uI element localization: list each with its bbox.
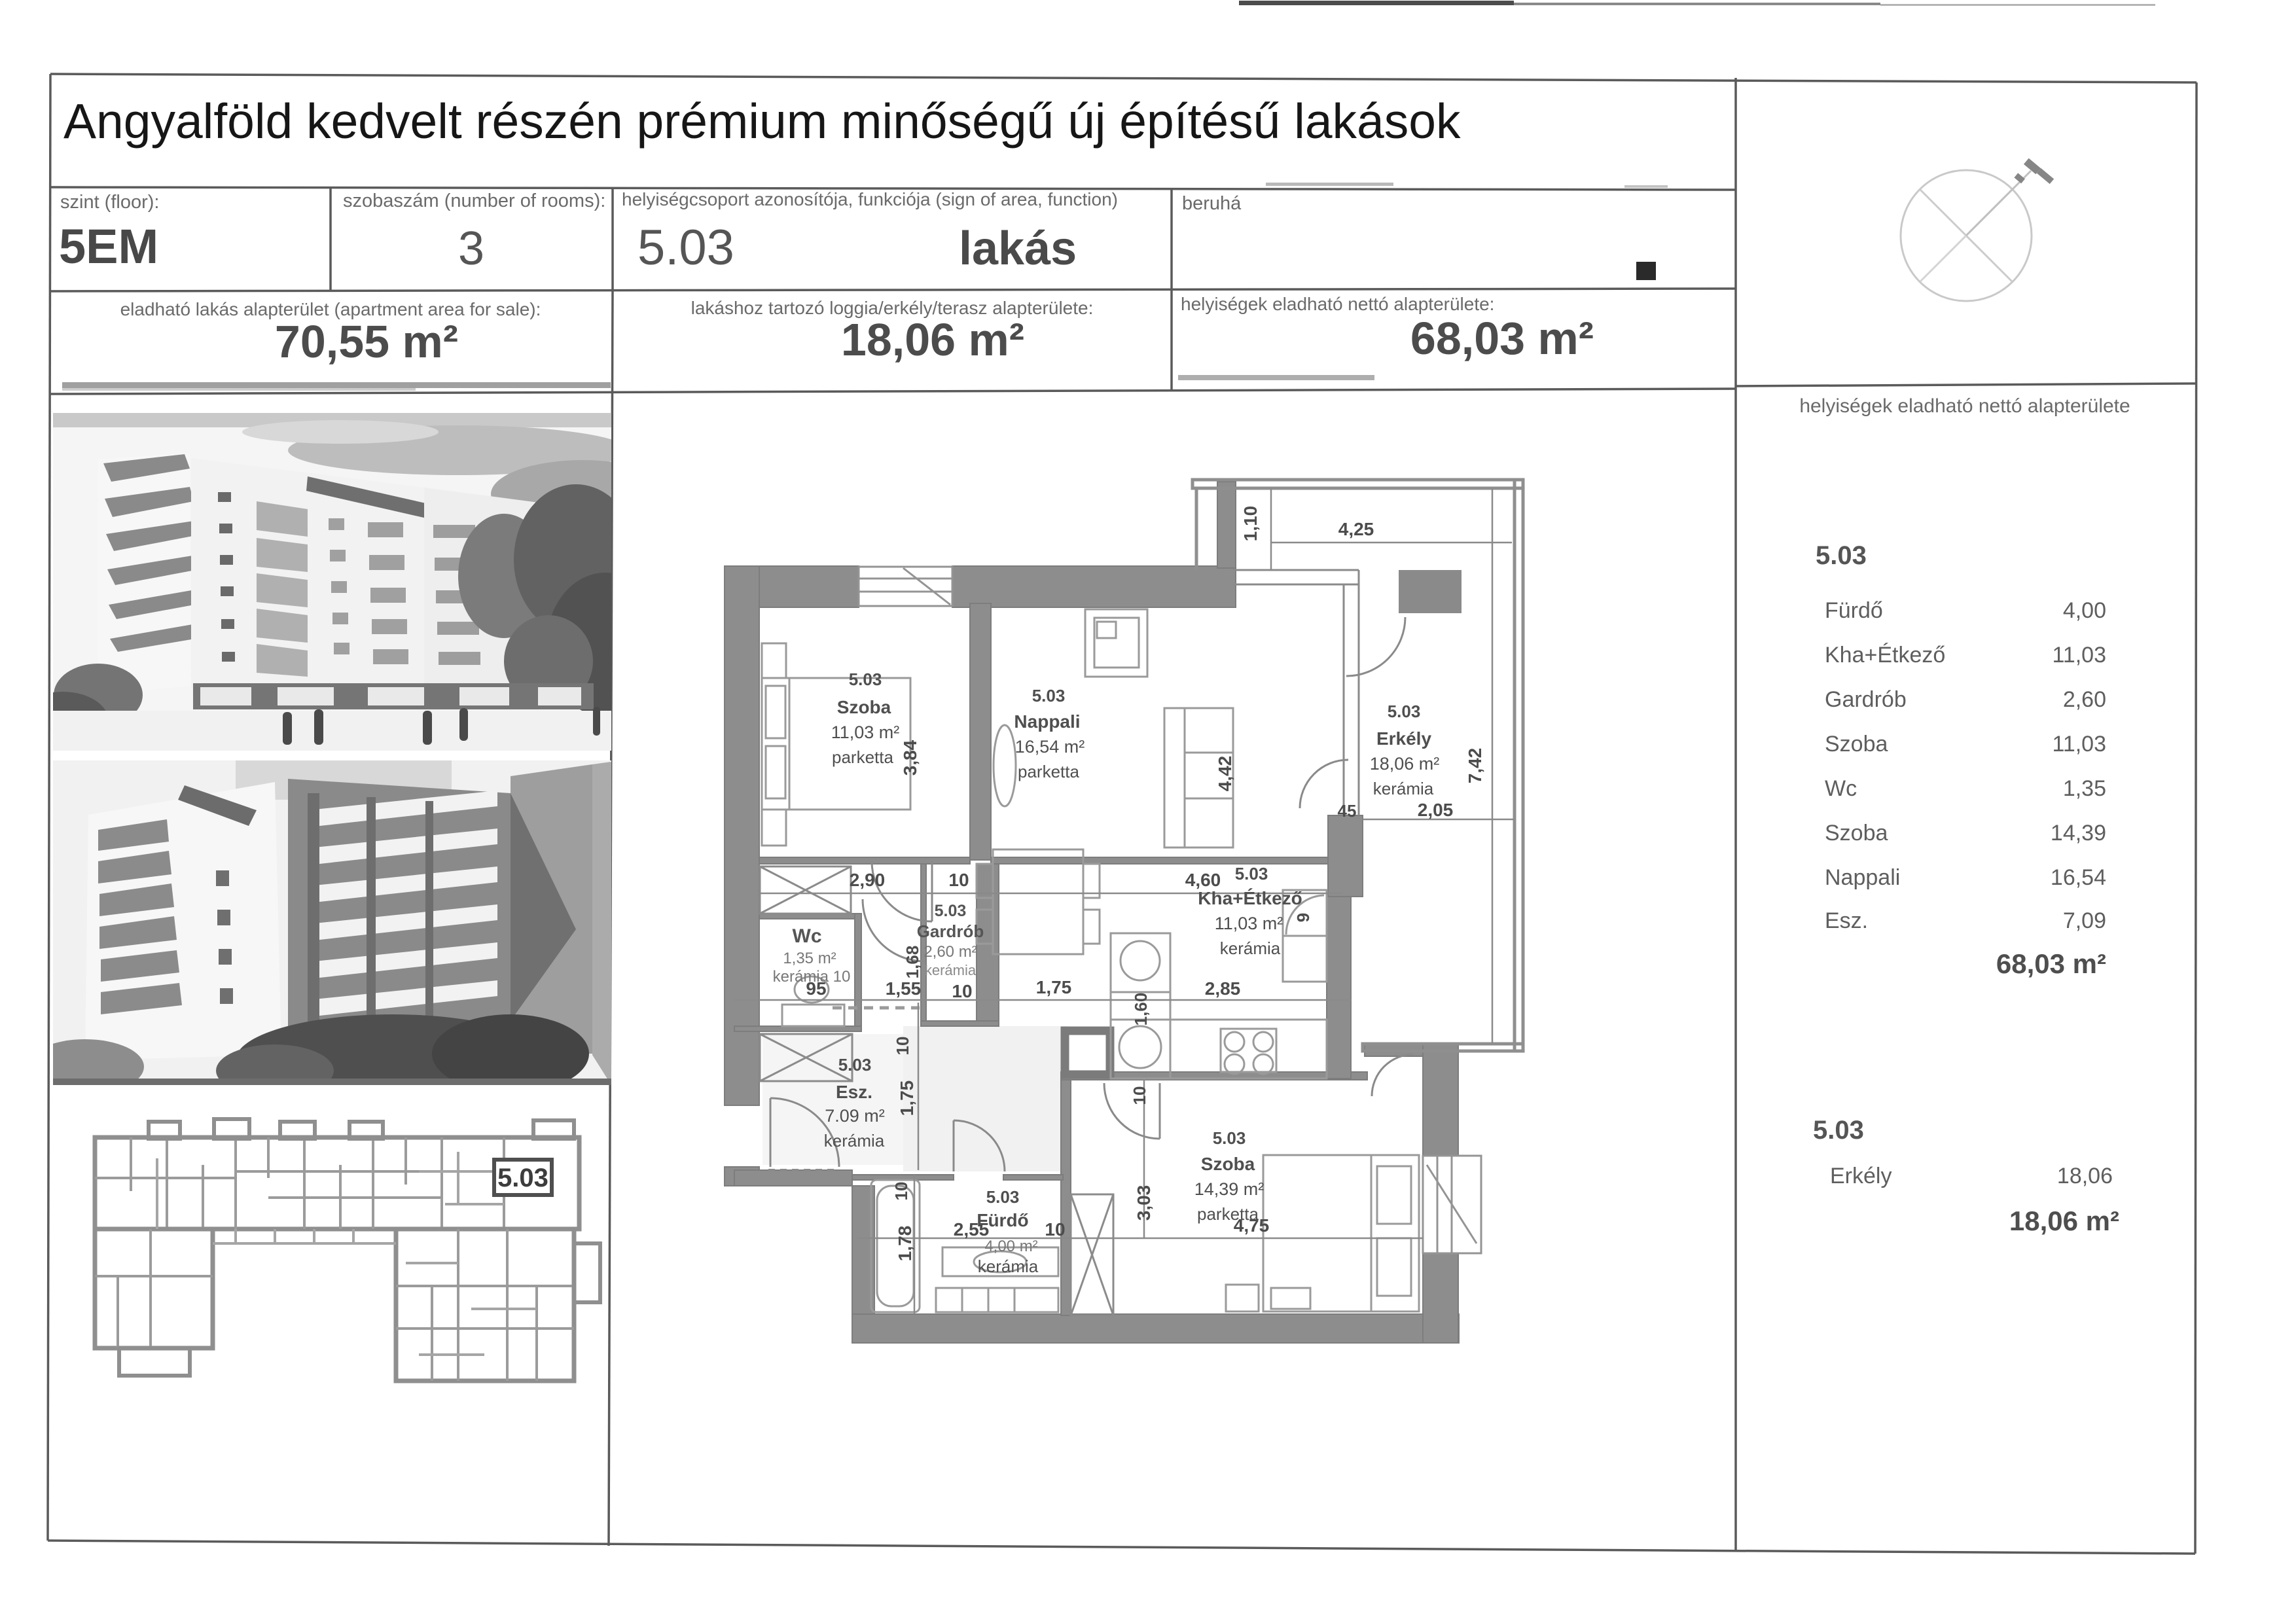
svg-text:Erkély: Erkély bbox=[1830, 1164, 1892, 1188]
svg-text:Kha+Étkező: Kha+Étkező bbox=[1825, 643, 1945, 668]
svg-text:szint (floor):: szint (floor): bbox=[60, 192, 159, 213]
svg-text:1,60: 1,60 bbox=[1131, 993, 1151, 1026]
svg-text:Kha+Étkező: Kha+Étkező bbox=[1198, 888, 1302, 908]
svg-text:kerámia: kerámia bbox=[1220, 938, 1281, 958]
svg-text:Gardrób: Gardrób bbox=[1825, 687, 1907, 712]
svg-text:Szoba: Szoba bbox=[1201, 1154, 1255, 1174]
svg-text:10: 10 bbox=[952, 981, 972, 1001]
svg-text:Szoba: Szoba bbox=[1825, 821, 1888, 846]
svg-text:parketta: parketta bbox=[1018, 762, 1079, 781]
svg-text:1,10: 1,10 bbox=[1240, 506, 1261, 542]
svg-text:68,03 m²: 68,03 m² bbox=[1410, 313, 1594, 364]
svg-text:5.03: 5.03 bbox=[1388, 702, 1421, 721]
svg-text:Szoba: Szoba bbox=[837, 697, 891, 717]
svg-text:18,06 m²: 18,06 m² bbox=[1370, 754, 1440, 774]
svg-text:5.03: 5.03 bbox=[637, 220, 734, 276]
svg-text:Esz.: Esz. bbox=[1825, 908, 1868, 933]
svg-text:11,03 m²: 11,03 m² bbox=[1215, 914, 1283, 933]
svg-text:Wc: Wc bbox=[1825, 776, 1857, 801]
svg-text:Szoba: Szoba bbox=[1825, 732, 1888, 757]
svg-text:5.03: 5.03 bbox=[497, 1164, 548, 1192]
svg-text:Nappali: Nappali bbox=[1014, 711, 1080, 732]
svg-text:beruhá: beruhá bbox=[1182, 193, 1242, 214]
svg-text:7.09 m²: 7.09 m² bbox=[825, 1106, 885, 1126]
svg-text:parketta: parketta bbox=[832, 747, 893, 767]
svg-text:10: 10 bbox=[891, 1182, 911, 1201]
svg-text:Esz.: Esz. bbox=[836, 1082, 872, 1102]
svg-text:2,60: 2,60 bbox=[2063, 687, 2106, 712]
svg-text:5.03: 5.03 bbox=[1235, 864, 1268, 883]
svg-text:3,84: 3,84 bbox=[900, 740, 920, 776]
svg-text:2,90: 2,90 bbox=[850, 870, 886, 890]
svg-text:11,03 m²: 11,03 m² bbox=[831, 722, 900, 742]
svg-text:10: 10 bbox=[948, 870, 969, 890]
svg-text:Nappali: Nappali bbox=[1825, 865, 1900, 890]
svg-text:kerámia: kerámia bbox=[978, 1257, 1039, 1276]
svg-text:5EM: 5EM bbox=[59, 219, 158, 274]
svg-text:14,39: 14,39 bbox=[2051, 821, 2106, 846]
svg-text:szobaszám (number of rooms):: szobaszám (number of rooms): bbox=[343, 190, 605, 211]
svg-text:4,60: 4,60 bbox=[1185, 870, 1221, 890]
svg-text:5.03: 5.03 bbox=[849, 669, 882, 689]
svg-text:4,42: 4,42 bbox=[1215, 756, 1235, 792]
svg-text:5.03: 5.03 bbox=[838, 1055, 872, 1075]
svg-text:Fürdő: Fürdő bbox=[1825, 598, 1883, 623]
svg-text:16,54 m²: 16,54 m² bbox=[1015, 737, 1085, 757]
svg-text:kerámia: kerámia bbox=[1373, 779, 1434, 798]
svg-text:2,05: 2,05 bbox=[1418, 800, 1454, 820]
svg-text:kerámia 10: kerámia 10 bbox=[773, 968, 851, 986]
svg-text:Fürdő: Fürdő bbox=[977, 1210, 1028, 1230]
svg-text:2,85: 2,85 bbox=[1205, 978, 1241, 999]
svg-text:4,00 m²: 4,00 m² bbox=[984, 1238, 1037, 1255]
svg-text:3: 3 bbox=[458, 223, 484, 275]
svg-text:5.03: 5.03 bbox=[1816, 541, 1867, 570]
svg-text:10: 10 bbox=[1130, 1086, 1149, 1105]
svg-text:1,68: 1,68 bbox=[903, 946, 922, 979]
svg-text:10: 10 bbox=[1045, 1219, 1065, 1240]
svg-text:10: 10 bbox=[893, 1037, 912, 1056]
svg-text:helyiségek eladható nettó alap: helyiségek eladható nettó alapterülete: bbox=[1181, 294, 1494, 314]
svg-text:1,75: 1,75 bbox=[1036, 977, 1072, 997]
svg-text:1,35: 1,35 bbox=[2063, 776, 2106, 801]
svg-text:5.03: 5.03 bbox=[986, 1187, 1020, 1207]
svg-text:11,03: 11,03 bbox=[2052, 732, 2106, 757]
svg-text:5.03: 5.03 bbox=[1032, 686, 1066, 705]
svg-text:70,55 m²: 70,55 m² bbox=[275, 316, 458, 367]
svg-text:5.03: 5.03 bbox=[1813, 1116, 1864, 1145]
svg-text:1,78: 1,78 bbox=[895, 1226, 915, 1262]
svg-text:kerámia: kerámia bbox=[925, 962, 977, 978]
svg-text:3,03: 3,03 bbox=[1134, 1185, 1154, 1221]
svg-text:7,42: 7,42 bbox=[1465, 748, 1485, 784]
svg-text:Wc: Wc bbox=[793, 925, 822, 947]
svg-text:4,25: 4,25 bbox=[1338, 519, 1374, 539]
svg-text:1,75: 1,75 bbox=[897, 1080, 917, 1116]
svg-text:kerámia: kerámia bbox=[824, 1131, 885, 1150]
svg-text:11,03: 11,03 bbox=[2052, 643, 2106, 668]
svg-text:2,60 m²: 2,60 m² bbox=[924, 943, 977, 961]
svg-text:helyiségcsoport azonosítója, f: helyiségcsoport azonosítója, funkciója (… bbox=[622, 189, 1118, 209]
svg-text:9: 9 bbox=[1293, 913, 1313, 922]
svg-text:1,55: 1,55 bbox=[886, 978, 922, 999]
svg-text:45: 45 bbox=[1338, 801, 1357, 821]
svg-text:Gardrób: Gardrób bbox=[917, 921, 984, 941]
svg-text:Erkély: Erkély bbox=[1376, 728, 1431, 749]
svg-text:parketta: parketta bbox=[1197, 1204, 1259, 1224]
svg-text:7,09: 7,09 bbox=[2063, 908, 2106, 933]
svg-text:16,54: 16,54 bbox=[2051, 865, 2106, 890]
svg-text:1,35 m²: 1,35 m² bbox=[783, 950, 836, 967]
svg-text:14,39 m²: 14,39 m² bbox=[1194, 1179, 1265, 1199]
svg-text:helyiségek eladható nettó alap: helyiségek eladható nettó alapterülete bbox=[1799, 395, 2130, 417]
svg-text:18,06 m²: 18,06 m² bbox=[841, 314, 1024, 365]
svg-text:68,03 m²: 68,03 m² bbox=[1996, 948, 2106, 979]
svg-text:4,00: 4,00 bbox=[2063, 598, 2106, 623]
svg-text:Angyalföld kedvelt részén prém: Angyalföld kedvelt részén prémium minősé… bbox=[63, 94, 1461, 149]
svg-text:18,06: 18,06 bbox=[2057, 1164, 2113, 1188]
svg-text:5.03: 5.03 bbox=[1213, 1128, 1246, 1148]
svg-text:lakás: lakás bbox=[959, 223, 1077, 275]
svg-text:5.03: 5.03 bbox=[935, 902, 967, 920]
svg-text:18,06 m²: 18,06 m² bbox=[2009, 1205, 2119, 1236]
